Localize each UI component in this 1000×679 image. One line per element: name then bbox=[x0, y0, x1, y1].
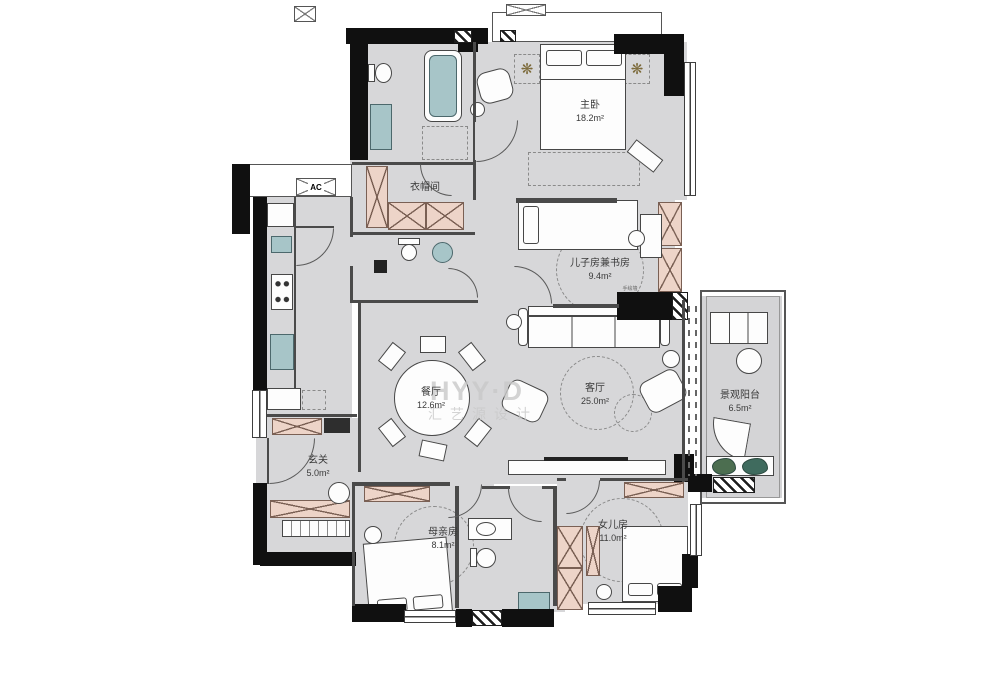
wall-thin bbox=[352, 162, 473, 165]
wall-thin bbox=[553, 486, 557, 606]
window bbox=[588, 602, 656, 615]
stool bbox=[364, 526, 382, 544]
wall-segment bbox=[658, 586, 692, 612]
ac-label: AC bbox=[308, 183, 324, 192]
cloakroom-wardrobe bbox=[366, 166, 388, 228]
sofa-seat bbox=[528, 316, 660, 348]
tv-console bbox=[508, 460, 666, 475]
wall-segment bbox=[260, 552, 356, 566]
cloakroom-wardrobe bbox=[388, 202, 426, 230]
wall-segment bbox=[456, 609, 472, 627]
mop-sink bbox=[518, 592, 550, 610]
room-label-living: 客厅 25.0m² bbox=[555, 383, 635, 407]
room-label-cloakroom: 衣帽间 bbox=[385, 182, 465, 195]
window bbox=[690, 504, 702, 556]
room-label-daughter-room: 女儿房 11.0m² bbox=[570, 520, 656, 544]
room-label-entry: 玄关 5.0m² bbox=[278, 455, 358, 479]
pillow bbox=[413, 594, 444, 611]
side-table bbox=[662, 350, 680, 368]
desk-chair bbox=[628, 230, 645, 247]
entry-bench-dark bbox=[324, 418, 350, 433]
bedroom-rug bbox=[528, 152, 640, 186]
kitchen-appliance bbox=[271, 236, 292, 253]
window bbox=[684, 62, 696, 196]
wall-hatch bbox=[672, 292, 688, 320]
wall-thin bbox=[352, 484, 355, 606]
fridge-dashed bbox=[302, 390, 326, 410]
dining-chair bbox=[420, 336, 446, 353]
wall-hatch bbox=[500, 30, 516, 42]
toilet-bowl bbox=[476, 548, 496, 568]
son-bed bbox=[518, 200, 638, 250]
toilet-bowl bbox=[375, 63, 392, 83]
round-sink bbox=[432, 242, 453, 263]
entry-pouf bbox=[328, 482, 350, 504]
window bbox=[252, 390, 267, 438]
stool bbox=[596, 584, 612, 600]
bath-vanity bbox=[370, 104, 392, 150]
plant bbox=[742, 458, 768, 475]
room-label-mother-room: 母亲房 8.1m² bbox=[400, 527, 486, 551]
wall-segment bbox=[502, 609, 554, 627]
mother-room-wardrobe bbox=[364, 486, 430, 502]
wall-segment bbox=[352, 604, 406, 622]
shower-area bbox=[422, 126, 468, 160]
wall-segment bbox=[253, 197, 267, 393]
wall-thin bbox=[553, 304, 619, 308]
wall-thin bbox=[352, 232, 475, 235]
entry-bench bbox=[282, 520, 350, 537]
bath-storage bbox=[557, 568, 583, 610]
wall-segment bbox=[682, 554, 698, 588]
duct-box bbox=[506, 4, 546, 16]
wall-thin bbox=[352, 300, 478, 303]
cloakroom-wardrobe bbox=[426, 202, 464, 230]
wall-hatch bbox=[713, 477, 755, 493]
nightstand: ❋ bbox=[514, 54, 540, 84]
ac-unit: AC bbox=[296, 178, 336, 196]
toilet-tank bbox=[368, 64, 375, 82]
wall-thin bbox=[600, 478, 688, 481]
wall-hatch bbox=[454, 30, 472, 43]
daughter-room-wardrobe bbox=[624, 482, 684, 498]
plant-icon: ❋ bbox=[625, 62, 649, 77]
wall-thin bbox=[350, 266, 353, 303]
door-leaf bbox=[473, 120, 475, 162]
pillow bbox=[523, 206, 539, 244]
wall-segment bbox=[350, 40, 368, 160]
stove bbox=[271, 274, 293, 310]
sliding-door-track bbox=[695, 306, 697, 476]
window bbox=[404, 610, 456, 623]
kitchen-sink-cabinet bbox=[267, 203, 294, 227]
wall-segment bbox=[232, 164, 250, 234]
wall-segment bbox=[664, 34, 684, 96]
side-table bbox=[506, 314, 522, 330]
wall-thin bbox=[557, 478, 566, 481]
wall-segment bbox=[617, 292, 674, 320]
wall-thin bbox=[516, 198, 617, 203]
nightstand: ❋ bbox=[624, 54, 650, 84]
room-label-son-room: 儿子房兼书房 9.4m² bbox=[555, 258, 645, 282]
tv-screen bbox=[544, 457, 628, 461]
pillow bbox=[546, 50, 582, 66]
entry-shoe-cabinet bbox=[272, 418, 322, 435]
room-label-balcony: 景观阳台 6.5m² bbox=[702, 390, 778, 414]
bathtub-basin bbox=[429, 55, 457, 117]
wall-note: 手绘墙 bbox=[600, 286, 660, 292]
wall-thin bbox=[267, 414, 357, 417]
wall-thin bbox=[350, 197, 353, 237]
wall-segment bbox=[688, 474, 712, 492]
pillow bbox=[628, 583, 653, 596]
room-label-master-bedroom: 主卧 18.2m² bbox=[545, 100, 635, 124]
wall-thin bbox=[473, 42, 476, 122]
sliding-door-track bbox=[688, 306, 690, 476]
floor-drain bbox=[374, 260, 387, 273]
balcony-table bbox=[736, 348, 762, 374]
toilet-bowl bbox=[401, 244, 417, 261]
balcony-bench bbox=[710, 312, 768, 344]
plant-icon: ❋ bbox=[515, 62, 539, 77]
room-label-dining: 餐厅 12.6m² bbox=[391, 387, 471, 411]
corner-cabinet bbox=[267, 388, 301, 410]
floor-plan-canvas: HYY·D 汇艺源设计 bbox=[0, 0, 1000, 679]
wall-thin bbox=[473, 160, 476, 200]
plant bbox=[712, 458, 736, 475]
wall-hatch bbox=[472, 610, 502, 626]
master-bed bbox=[540, 44, 626, 150]
wall-thin bbox=[358, 416, 361, 472]
duct-box bbox=[294, 6, 316, 22]
wall-thin bbox=[352, 482, 450, 486]
kitchen-double-sink bbox=[270, 334, 294, 370]
wall-thin bbox=[358, 300, 361, 418]
wall-thin bbox=[682, 300, 685, 482]
wall-thin bbox=[482, 486, 510, 489]
